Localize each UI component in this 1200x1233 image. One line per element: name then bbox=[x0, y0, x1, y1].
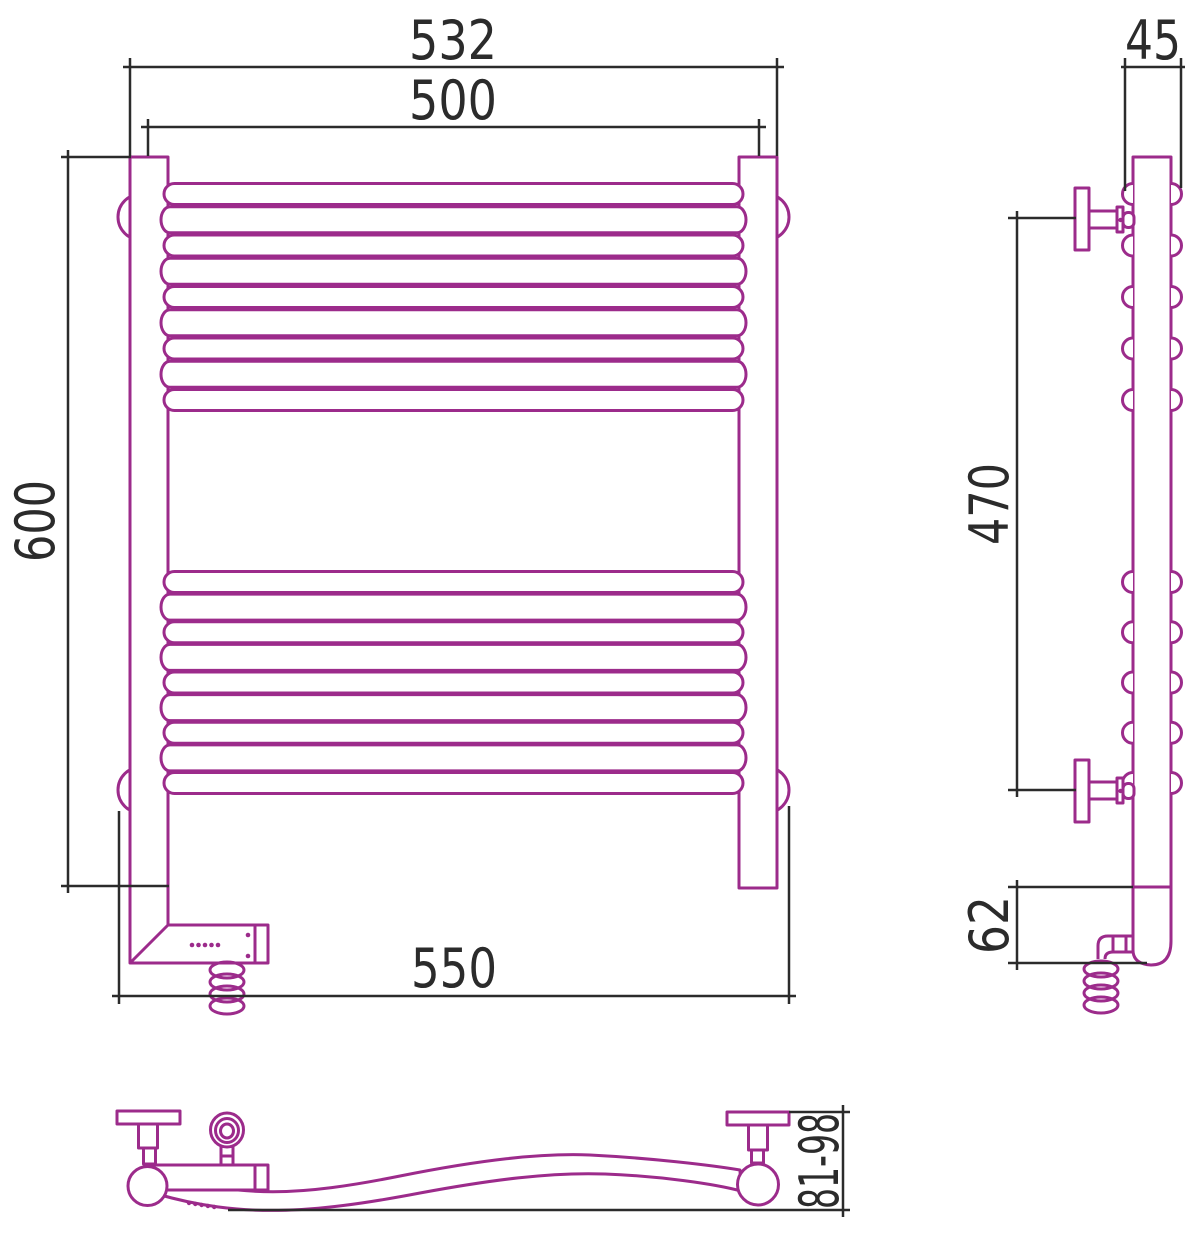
bracket-flange bbox=[117, 1111, 180, 1124]
bracket-stem bbox=[139, 1124, 158, 1148]
power-cord-coil-front bbox=[210, 962, 244, 1014]
rail bbox=[164, 722, 743, 743]
wall-bracket-bottom bbox=[1075, 760, 1134, 822]
rail bbox=[164, 572, 743, 593]
led-dot bbox=[190, 943, 195, 948]
rail bbox=[164, 773, 743, 794]
led-dot bbox=[212, 1205, 216, 1209]
rail bbox=[164, 287, 743, 308]
rail-recessed bbox=[161, 594, 746, 620]
dimension-label-470: 470 bbox=[958, 463, 1021, 545]
rail-recessed bbox=[161, 258, 746, 284]
power-cord-coil-side bbox=[1084, 961, 1118, 1013]
led-dot bbox=[196, 943, 201, 948]
rail-end-bump-front bbox=[1171, 672, 1182, 693]
bracket-foot bbox=[752, 1150, 764, 1163]
rail bbox=[164, 622, 743, 643]
rail-recessed bbox=[161, 207, 746, 233]
rail-end-bump-front bbox=[1171, 390, 1182, 411]
rail-end-bump-back bbox=[1123, 235, 1134, 256]
control-box-screw-top bbox=[246, 933, 251, 938]
led-dot bbox=[206, 1204, 210, 1208]
bracket-stem bbox=[1089, 211, 1117, 228]
towel-rail-technical-drawing: 532 500 600 550 45 bbox=[0, 0, 1200, 1233]
left-post-section bbox=[128, 1167, 167, 1206]
rail-end-bump-back bbox=[1123, 622, 1134, 643]
rail-end-bump-front bbox=[1171, 722, 1182, 743]
led-dot bbox=[216, 943, 221, 948]
coil-loop bbox=[210, 998, 244, 1014]
power-connection-side bbox=[1098, 936, 1133, 959]
bracket-knob bbox=[1123, 213, 1134, 228]
bracket-flange bbox=[727, 1112, 789, 1125]
top-view bbox=[117, 1111, 789, 1210]
led-dot bbox=[209, 943, 214, 948]
led-dot bbox=[203, 943, 208, 948]
rail bbox=[164, 390, 743, 411]
led-dot bbox=[199, 1203, 203, 1207]
wall-bracket-right-top-view bbox=[727, 1112, 789, 1163]
bracket-pin-dot bbox=[1118, 218, 1122, 222]
bracket-flange bbox=[1075, 188, 1089, 250]
rail-recessed bbox=[161, 644, 746, 670]
dimension-label-62: 62 bbox=[958, 896, 1021, 954]
cable-elbow bbox=[1098, 936, 1113, 959]
bracket-stem bbox=[1089, 782, 1117, 799]
rail-end-bump-front bbox=[1171, 235, 1182, 256]
side-view bbox=[1075, 157, 1182, 1013]
dimension-label-500: 500 bbox=[409, 69, 497, 132]
rail-end-bump-back bbox=[1123, 672, 1134, 693]
rail bbox=[164, 184, 743, 205]
rail-end-bump-back bbox=[1123, 722, 1134, 743]
rail bbox=[164, 235, 743, 256]
coil-ring-inner bbox=[221, 1124, 234, 1138]
dimension-label-550: 550 bbox=[411, 937, 497, 1000]
dimension-front-rail-length: 500 bbox=[141, 69, 766, 156]
control-box-screw-bottom bbox=[246, 954, 251, 959]
drawing-page: 532 500 600 550 45 bbox=[0, 0, 1200, 1233]
dimension-label-81-98: 81-98 bbox=[788, 1113, 851, 1209]
rail-end-bump-front bbox=[1171, 622, 1182, 643]
rail-recessed bbox=[161, 361, 746, 387]
coil-loop bbox=[1084, 997, 1118, 1013]
dimension-side-heater-height: 62 bbox=[958, 880, 1147, 970]
rail-end-bump-back bbox=[1123, 390, 1134, 411]
bracket-pin-dot bbox=[1118, 789, 1122, 793]
bracket-foot bbox=[144, 1148, 156, 1164]
rail-end-bump-front bbox=[1171, 287, 1182, 308]
power-cord-coil-top-view bbox=[211, 1113, 244, 1164]
rail-end-bump-front bbox=[1171, 338, 1182, 359]
rail bbox=[164, 338, 743, 359]
dimension-label-45: 45 bbox=[1125, 9, 1181, 72]
bracket-flange bbox=[1075, 760, 1089, 822]
rail-end-bump-back bbox=[1123, 572, 1134, 593]
wall-bracket-left-top-view bbox=[117, 1111, 180, 1164]
rail bbox=[164, 672, 743, 693]
rail-end-bump-front bbox=[1171, 773, 1182, 794]
dimension-label-532: 532 bbox=[409, 9, 497, 72]
bracket-knob bbox=[1123, 784, 1134, 799]
bracket-stem bbox=[749, 1125, 768, 1150]
front-rails bbox=[161, 184, 746, 794]
dimension-label-600: 600 bbox=[4, 480, 67, 562]
cable-gland bbox=[1113, 936, 1133, 952]
dimension-side-bracket-span: 470 bbox=[958, 211, 1076, 797]
rail-end-bump-back bbox=[1123, 287, 1134, 308]
rail-recessed bbox=[161, 745, 746, 771]
rail-end-bump-front bbox=[1171, 572, 1182, 593]
front-view bbox=[118, 157, 789, 1014]
side-post bbox=[1133, 157, 1171, 965]
led-dot bbox=[193, 1202, 197, 1206]
led-dot bbox=[187, 1201, 191, 1205]
rail-end-bump-back bbox=[1123, 338, 1134, 359]
rail-recessed bbox=[161, 310, 746, 336]
rail-recessed bbox=[161, 695, 746, 721]
right-post-section bbox=[738, 1164, 779, 1205]
